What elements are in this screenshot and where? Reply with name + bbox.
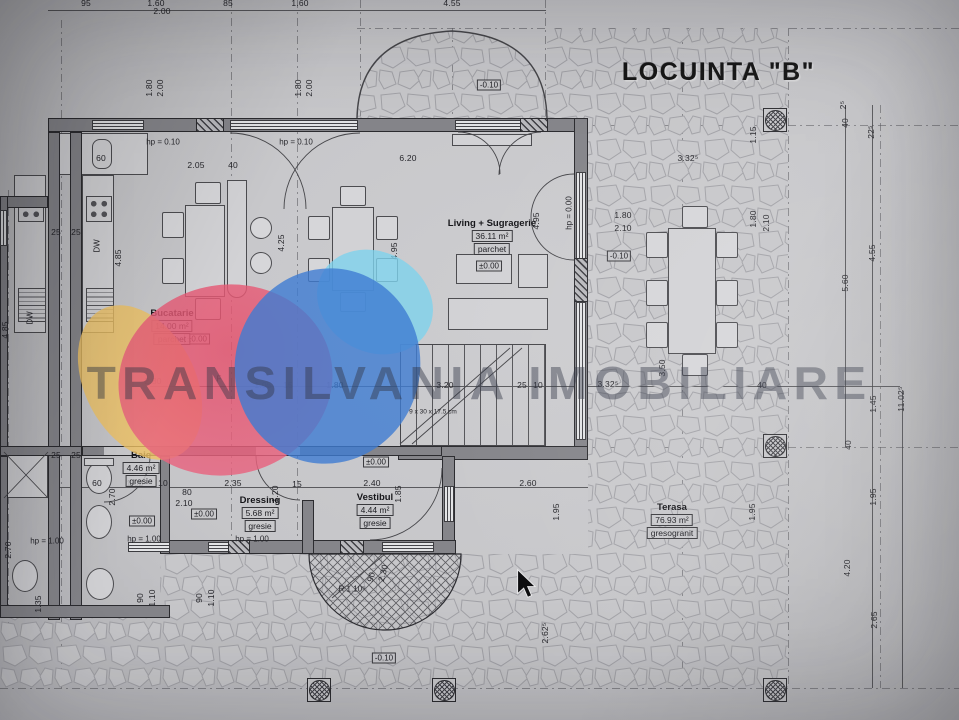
dimension-label: 2⁵ <box>838 101 848 110</box>
dimension-label: 60 <box>96 153 106 163</box>
dimension-label: 1.80 <box>293 79 303 96</box>
annotation-label: DW <box>26 311 35 324</box>
room-finish: gresie <box>125 475 156 487</box>
column-symbol <box>763 678 787 702</box>
dimension-label: 1.60 <box>291 0 308 8</box>
room-area: 4.46 m² <box>123 462 160 474</box>
room-name: Living + Sugragerie <box>448 218 536 229</box>
wall-hatch <box>196 118 224 132</box>
dimension-label: 1.10 <box>147 589 157 606</box>
room-name: Vestibul <box>357 492 393 503</box>
room-label-vestibul: Vestibul4.44 m²gresie <box>357 492 394 529</box>
dimension-label: 40 <box>843 440 853 450</box>
floor-plan-photo: LOCUINTA "B" TRANSILVANIA IMOBILIARE 951… <box>0 0 959 720</box>
dimension-label: 4.85 <box>113 249 123 266</box>
room-finish: gresie <box>244 520 275 532</box>
vestibule-door <box>382 542 434 552</box>
dimension-label: 2.00 <box>153 6 170 16</box>
dimension-label: 1.10 <box>206 589 216 606</box>
parapet-height-label: hp = 0.00 <box>565 196 574 230</box>
dimension-label: 2.62⁵ <box>540 622 550 643</box>
dimension-label: 2.70 <box>107 488 117 505</box>
column-symbol <box>432 678 456 702</box>
parapet-height-label: hp = 1.00 <box>235 535 269 544</box>
french-door <box>230 120 358 130</box>
room-name: Terasa <box>657 502 687 513</box>
annotation-label: DW <box>93 239 102 252</box>
parapet-height-label: hp = 0.10 <box>279 138 313 147</box>
dimension-label: 2.05 <box>187 160 204 170</box>
level-marker: -0.10 <box>372 653 396 664</box>
room-finish: gresie <box>359 517 390 529</box>
dimension-label: 2.10 <box>614 223 631 233</box>
dimension-label: 2.60 <box>519 478 536 488</box>
dimension-label: 2.65 <box>869 611 879 628</box>
room-finish: parchet <box>474 243 510 255</box>
dimension-label: 2.00 <box>155 79 165 96</box>
dimension-label: 25 <box>71 450 81 460</box>
dimension-label: 2.40 <box>363 478 380 488</box>
dimension-label: 4.20 <box>842 559 852 576</box>
dimension-label: 1.85 <box>393 485 403 502</box>
dimension-label: 1.80 <box>144 79 154 96</box>
wall-hatch <box>520 118 548 132</box>
window <box>444 486 454 522</box>
dimension-label: 25 <box>71 227 81 237</box>
parapet-height-label: hp = 1.00 <box>30 537 64 546</box>
level-marker: ±0.00 <box>129 516 155 527</box>
dimension-label: 80 <box>182 487 192 497</box>
level-marker: -0.10 <box>607 251 631 262</box>
wall-hatch <box>574 258 588 302</box>
dimension-label: 40 <box>228 160 238 170</box>
room-finish: gresogranit <box>647 527 698 539</box>
plan-title: LOCUINTA "B" <box>622 58 815 87</box>
parapet-height-label: hp = 0.10 <box>146 138 180 147</box>
dimension-label: 2.00 <box>304 79 314 96</box>
neighbor-window <box>0 210 8 246</box>
dimension-label: 40 <box>840 118 850 128</box>
dimension-label: 1.95 <box>747 503 757 520</box>
terrace-door <box>576 172 586 260</box>
dimension-label: 4.25 <box>276 234 286 251</box>
room-area: 5.68 m² <box>242 507 279 519</box>
dimension-label: 3.32⁵ <box>677 153 698 163</box>
dimension-label: 1.80 <box>614 210 631 220</box>
parapet-height-label: hp = 1.00 <box>127 535 161 544</box>
dimension-label: 4.55 <box>867 244 877 261</box>
level-marker: -0.10 <box>477 80 501 91</box>
dimension-label: 60 <box>92 478 102 488</box>
level-marker: ±0.00 <box>191 509 217 520</box>
dimension-label: 1.15 <box>748 126 758 143</box>
dimension-label: 2.35 <box>224 478 241 488</box>
watermark-text: TRANSILVANIA IMOBILIARE <box>0 356 959 410</box>
dimension-label: 90 <box>194 593 204 603</box>
column-symbol <box>763 434 787 458</box>
level-marker: ±0.00 <box>476 261 502 272</box>
dimension-label: 6.20 <box>399 153 416 163</box>
room-name: Dressing <box>240 495 281 506</box>
dimension-label: 22⁵ <box>866 125 876 139</box>
dimension-label: 1.80 <box>748 210 758 227</box>
dimension-label: 95 <box>81 0 91 8</box>
dimension-label: 25 <box>51 227 61 237</box>
mouse-cursor <box>516 568 546 604</box>
dimension-label: 15 <box>292 479 302 489</box>
dimension-label: 4.85 <box>0 321 10 338</box>
room-area: 36.11 m² <box>472 230 513 242</box>
annotation-label: R 1.10⁵ <box>339 585 366 594</box>
window <box>128 542 170 552</box>
column-symbol <box>763 108 787 132</box>
dimension-label: 10 <box>158 478 168 488</box>
dimension-label: 4.55 <box>443 0 460 8</box>
level-marker: ±0.00 <box>363 457 389 468</box>
dimension-label: 2.10 <box>175 498 192 508</box>
dimension-label: 25 <box>51 450 61 460</box>
dimension-label: 1.35 <box>33 595 43 612</box>
room-area: 4.44 m² <box>357 504 394 516</box>
dimension-label: 5.60 <box>840 274 850 291</box>
room-area: 76.93 m² <box>651 514 693 526</box>
window <box>92 120 144 130</box>
column-symbol <box>307 678 331 702</box>
dimension-label: 2.70 <box>3 541 13 558</box>
wall-hatch <box>340 540 364 554</box>
dimension-label: 90 <box>135 593 145 603</box>
dimension-label: 1.95 <box>551 503 561 520</box>
room-label-dressing: Dressing5.68 m²gresie <box>240 495 281 532</box>
dimension-label: 1.95 <box>868 488 878 505</box>
room-label-living-sugragerie: Living + Sugragerie36.11 m²parchet <box>448 218 536 255</box>
room-label-terasa: Terasa76.93 m²gresogranit <box>647 502 698 539</box>
dimension-label: 2.10 <box>761 214 771 231</box>
dimension-label: 85 <box>223 0 233 8</box>
